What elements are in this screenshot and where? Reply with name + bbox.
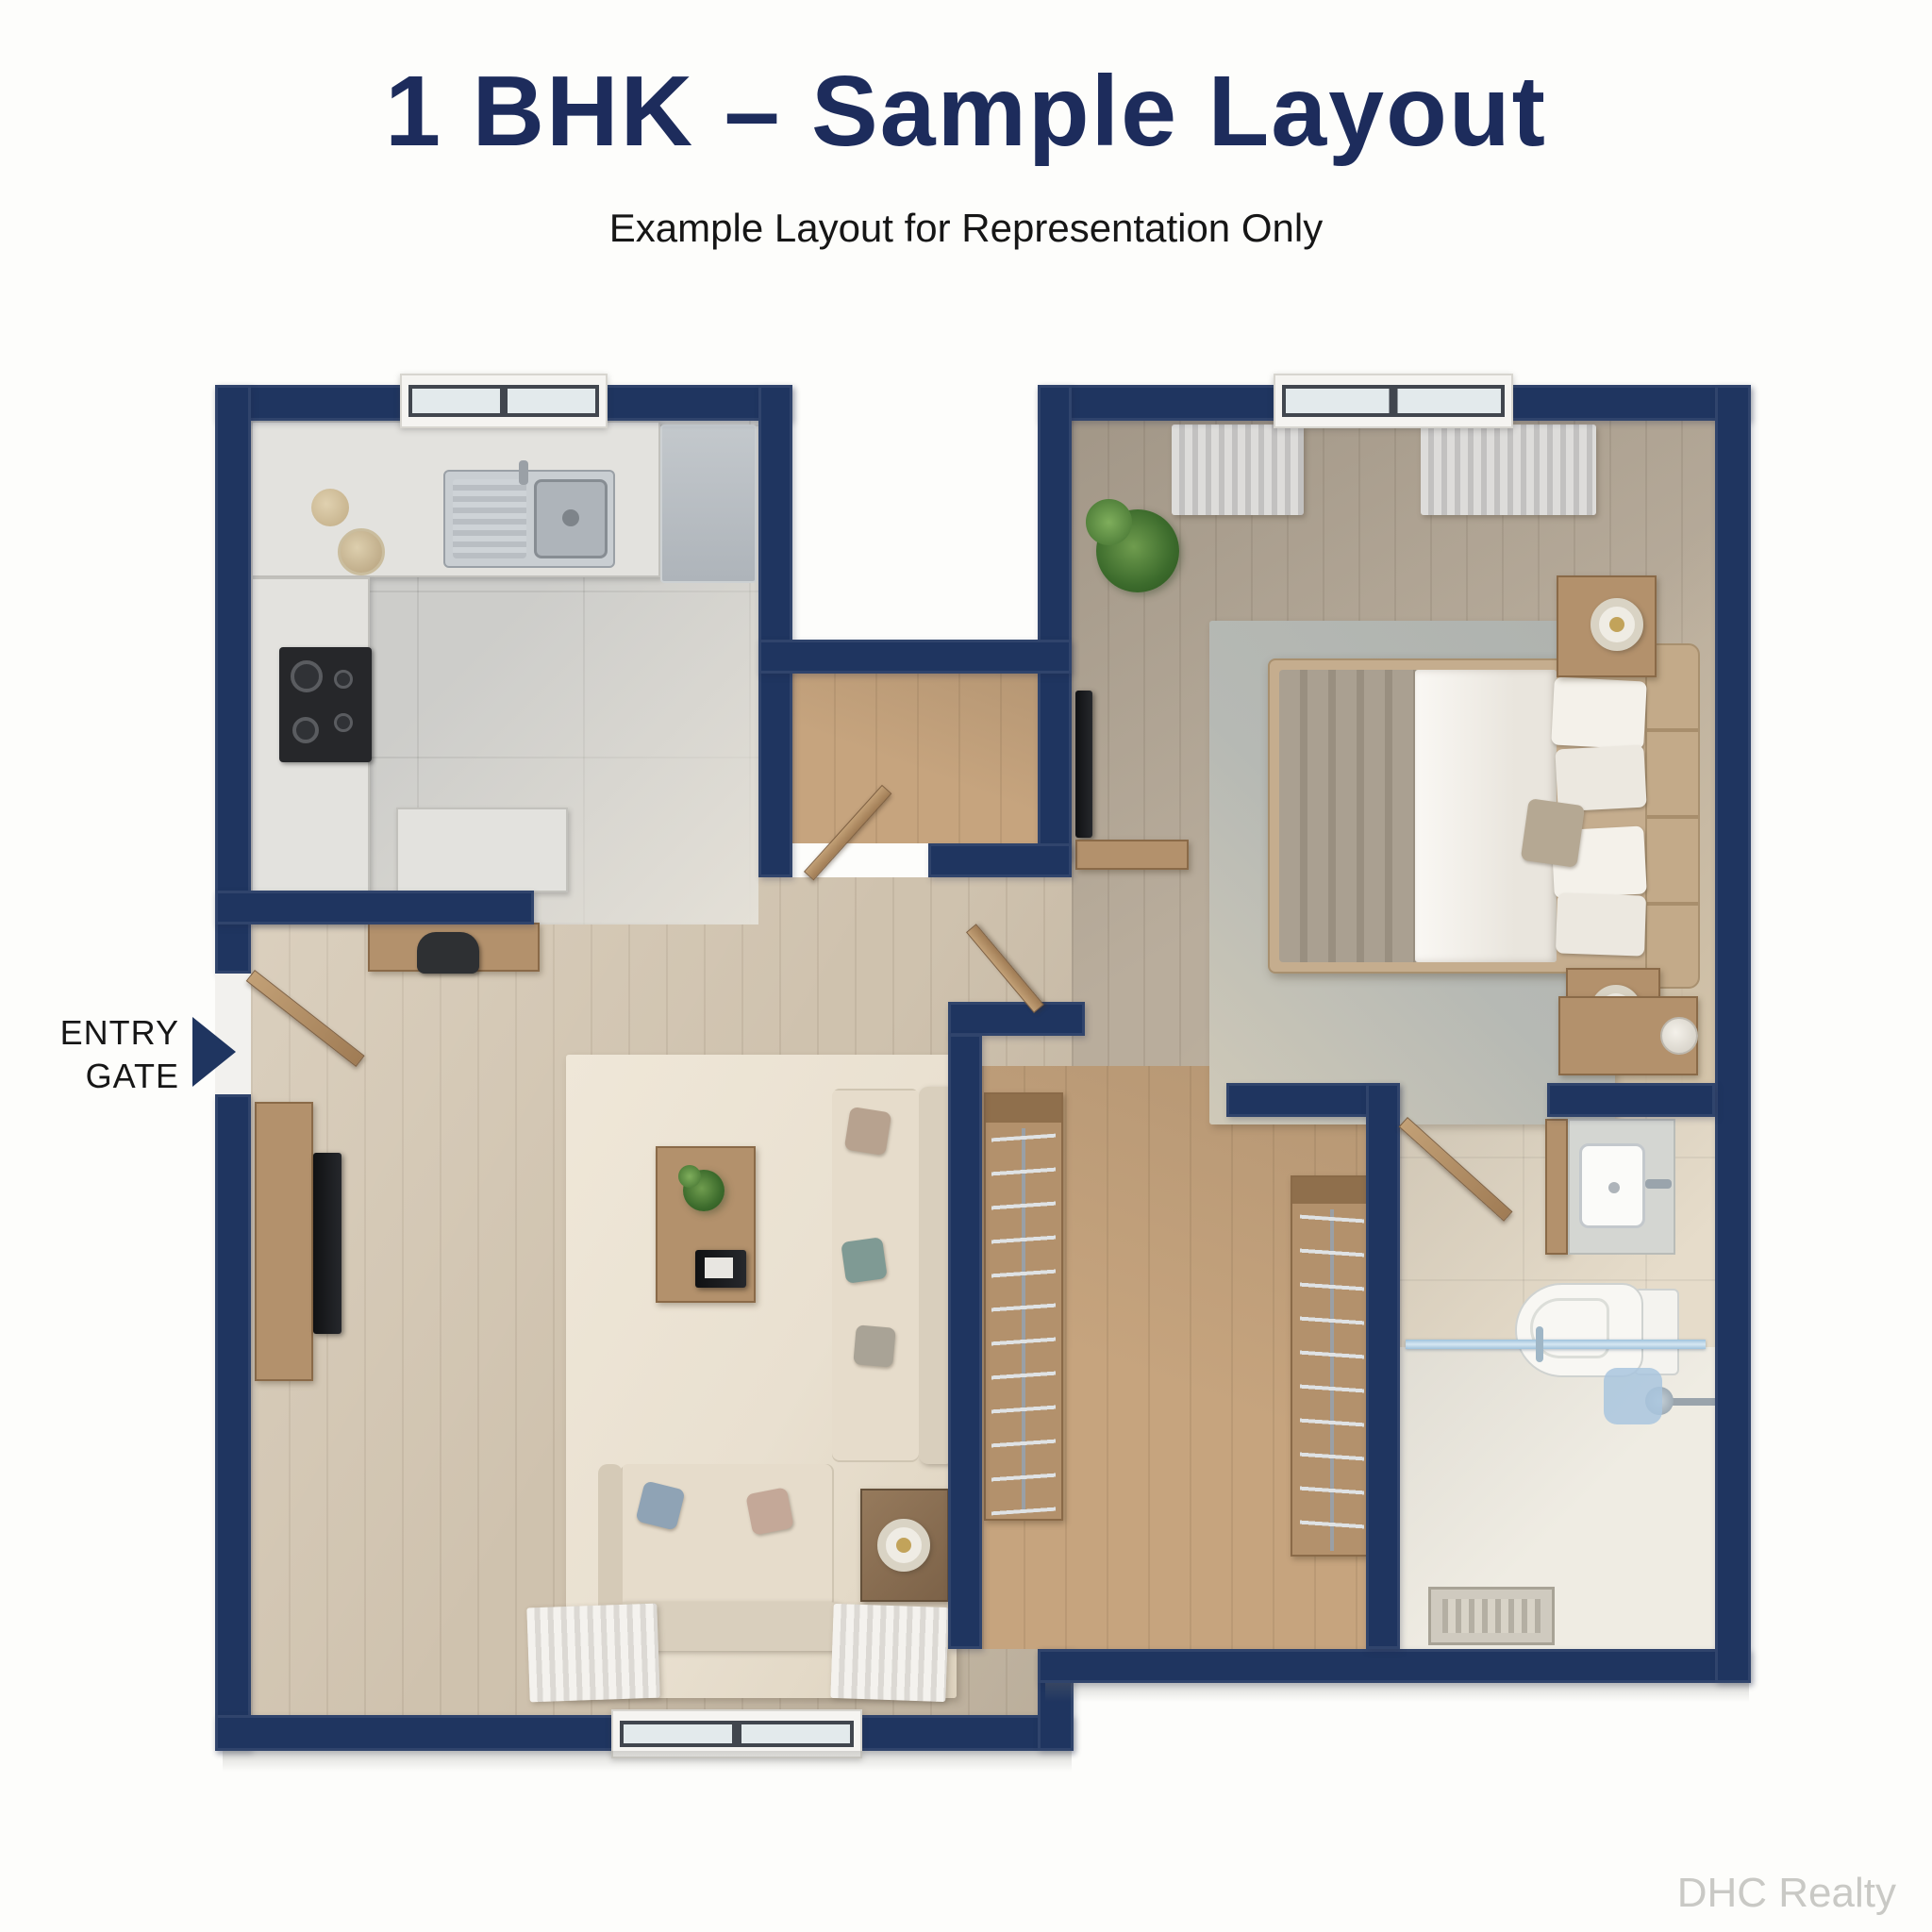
table-lamp [877,1519,930,1572]
shower-mat [1604,1368,1662,1424]
wardrobe-shelf [986,1094,1061,1123]
burner-icon [334,713,353,732]
window-panes-icon [620,1721,854,1747]
sheer-curtain [830,1604,948,1702]
floor-drain [1428,1587,1555,1645]
toilet-bowl [1515,1283,1643,1377]
bedroom-tv [1075,691,1092,838]
foyer-floor [792,674,1038,843]
wall-duct-bottom [758,640,1072,674]
gas-hob [279,647,372,762]
bedroom-window [1274,374,1513,428]
floor-plan [0,0,1932,1932]
window-panes-icon [1282,385,1505,417]
sink-drainboard [453,479,526,558]
shower-glass-partition [1406,1340,1706,1349]
wall-kitchen-bottom [215,891,534,924]
nightstand-lamp [1591,598,1643,651]
basin-faucet [1645,1179,1672,1189]
sheer-curtain [526,1604,659,1703]
plan-shadow [1045,1683,1749,1702]
burner-icon [334,670,353,689]
accent-pillow [1521,798,1586,868]
kitchen-jar [338,528,385,575]
refrigerator [660,425,757,583]
wardrobe-right [1291,1175,1370,1557]
clothes-hangers [1300,1215,1364,1554]
wall-wardrobe-left [948,1034,982,1649]
table-plant [683,1170,724,1211]
plan-shadow [223,1751,1072,1772]
tv-console [255,1102,313,1381]
wall-bottom-right [1038,1649,1751,1683]
wall-duct-left [758,385,792,877]
wardrobe-shelf [1292,1177,1368,1204]
wall-left-upper [215,385,251,974]
decor-tray [695,1250,746,1288]
wall-foyer-bottom [928,843,1072,877]
sofa-pillow [844,1107,892,1156]
brand-watermark: DHC Realty [1677,1870,1896,1917]
decor-card [705,1257,733,1278]
wall-left-lower [215,1094,251,1751]
entry-gate-label: ENTRY GATE [38,1011,179,1098]
burner-icon [291,660,323,692]
kitchen-window [400,374,608,428]
bedroom-curtain [1421,425,1596,515]
sink-drain-icon [562,509,579,526]
basin-drain-icon [1608,1182,1620,1193]
sink-faucet [519,460,528,485]
sofa-pillow [841,1237,888,1284]
drain-grate [1442,1599,1541,1633]
bedroom-curtain [1172,425,1304,515]
bed-pillow [1551,676,1647,749]
tv-screen [313,1153,341,1334]
vanity-cabinet [1545,1119,1568,1255]
wall-right [1715,385,1751,1683]
burner-icon [292,717,319,743]
breakfast-counter [396,808,568,892]
kitchen-jar [311,489,349,526]
wash-basin [1579,1143,1645,1228]
wall-duct-right [1038,385,1072,860]
kitchen-sink [443,470,615,568]
bed-blanket [1279,670,1426,962]
desk-chair [417,932,479,974]
shower-glass-handle [1536,1326,1543,1362]
bedroom-media-shelf [1075,840,1189,870]
entry-gate-line1: ENTRY [38,1011,179,1055]
clothes-hangers [991,1134,1056,1516]
sofa-pillow [853,1324,896,1368]
wall-bottom-a [215,1715,615,1751]
bed-headboard [1645,643,1700,989]
wall-bath-top [1547,1083,1715,1117]
dresser-vase [1660,1017,1698,1055]
entry-gate-line2: GATE [38,1055,179,1098]
wardrobe-left [984,1092,1063,1521]
wall-bath-shared [1366,1083,1400,1649]
window-panes-icon [408,385,599,417]
bed-pillow [1556,892,1646,956]
entry-arrow-icon [192,1017,236,1087]
bedroom-plant [1096,509,1179,592]
bed-pillow [1555,745,1646,812]
sofa-pillow [745,1487,794,1536]
wall-wardrobe-cap-left [948,1002,1085,1036]
